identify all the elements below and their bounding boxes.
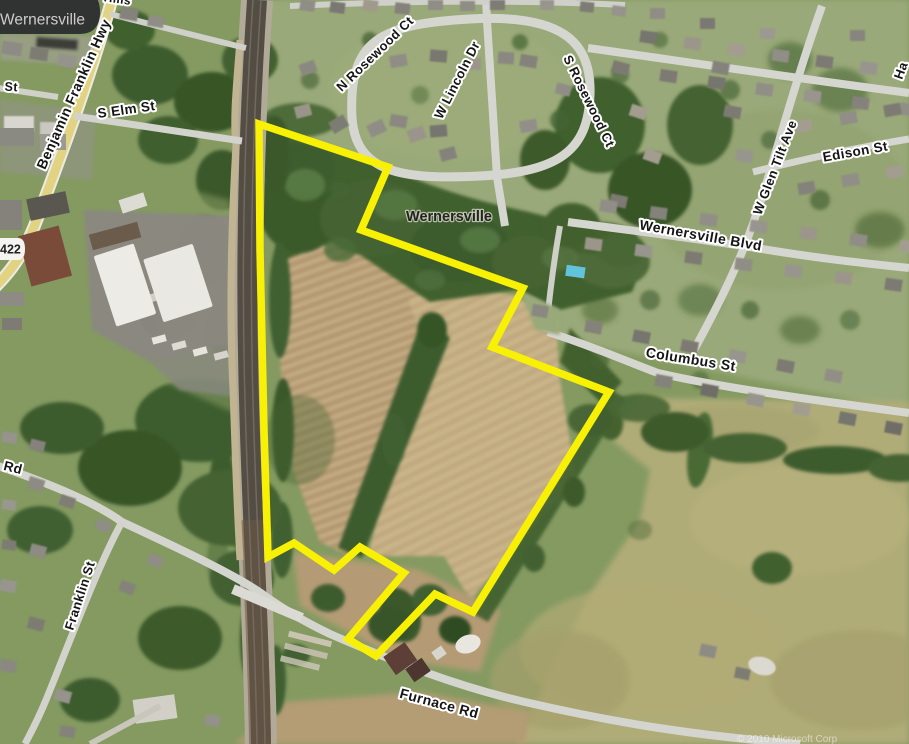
- svg-text:Wernersville: Wernersville: [406, 209, 492, 225]
- svg-text:Wernersville: Wernersville: [0, 12, 85, 29]
- svg-text:St: St: [4, 80, 18, 95]
- svg-text:© 2010 Microsoft Corp: © 2010 Microsoft Corp: [737, 734, 838, 744]
- svg-text:422: 422: [0, 243, 21, 257]
